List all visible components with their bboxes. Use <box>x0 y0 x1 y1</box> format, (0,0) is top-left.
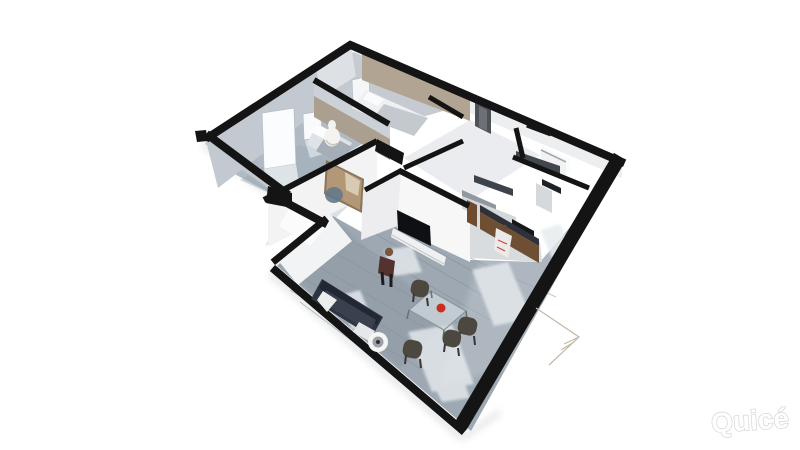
svg-text:Quicé: Quicé <box>710 402 790 438</box>
